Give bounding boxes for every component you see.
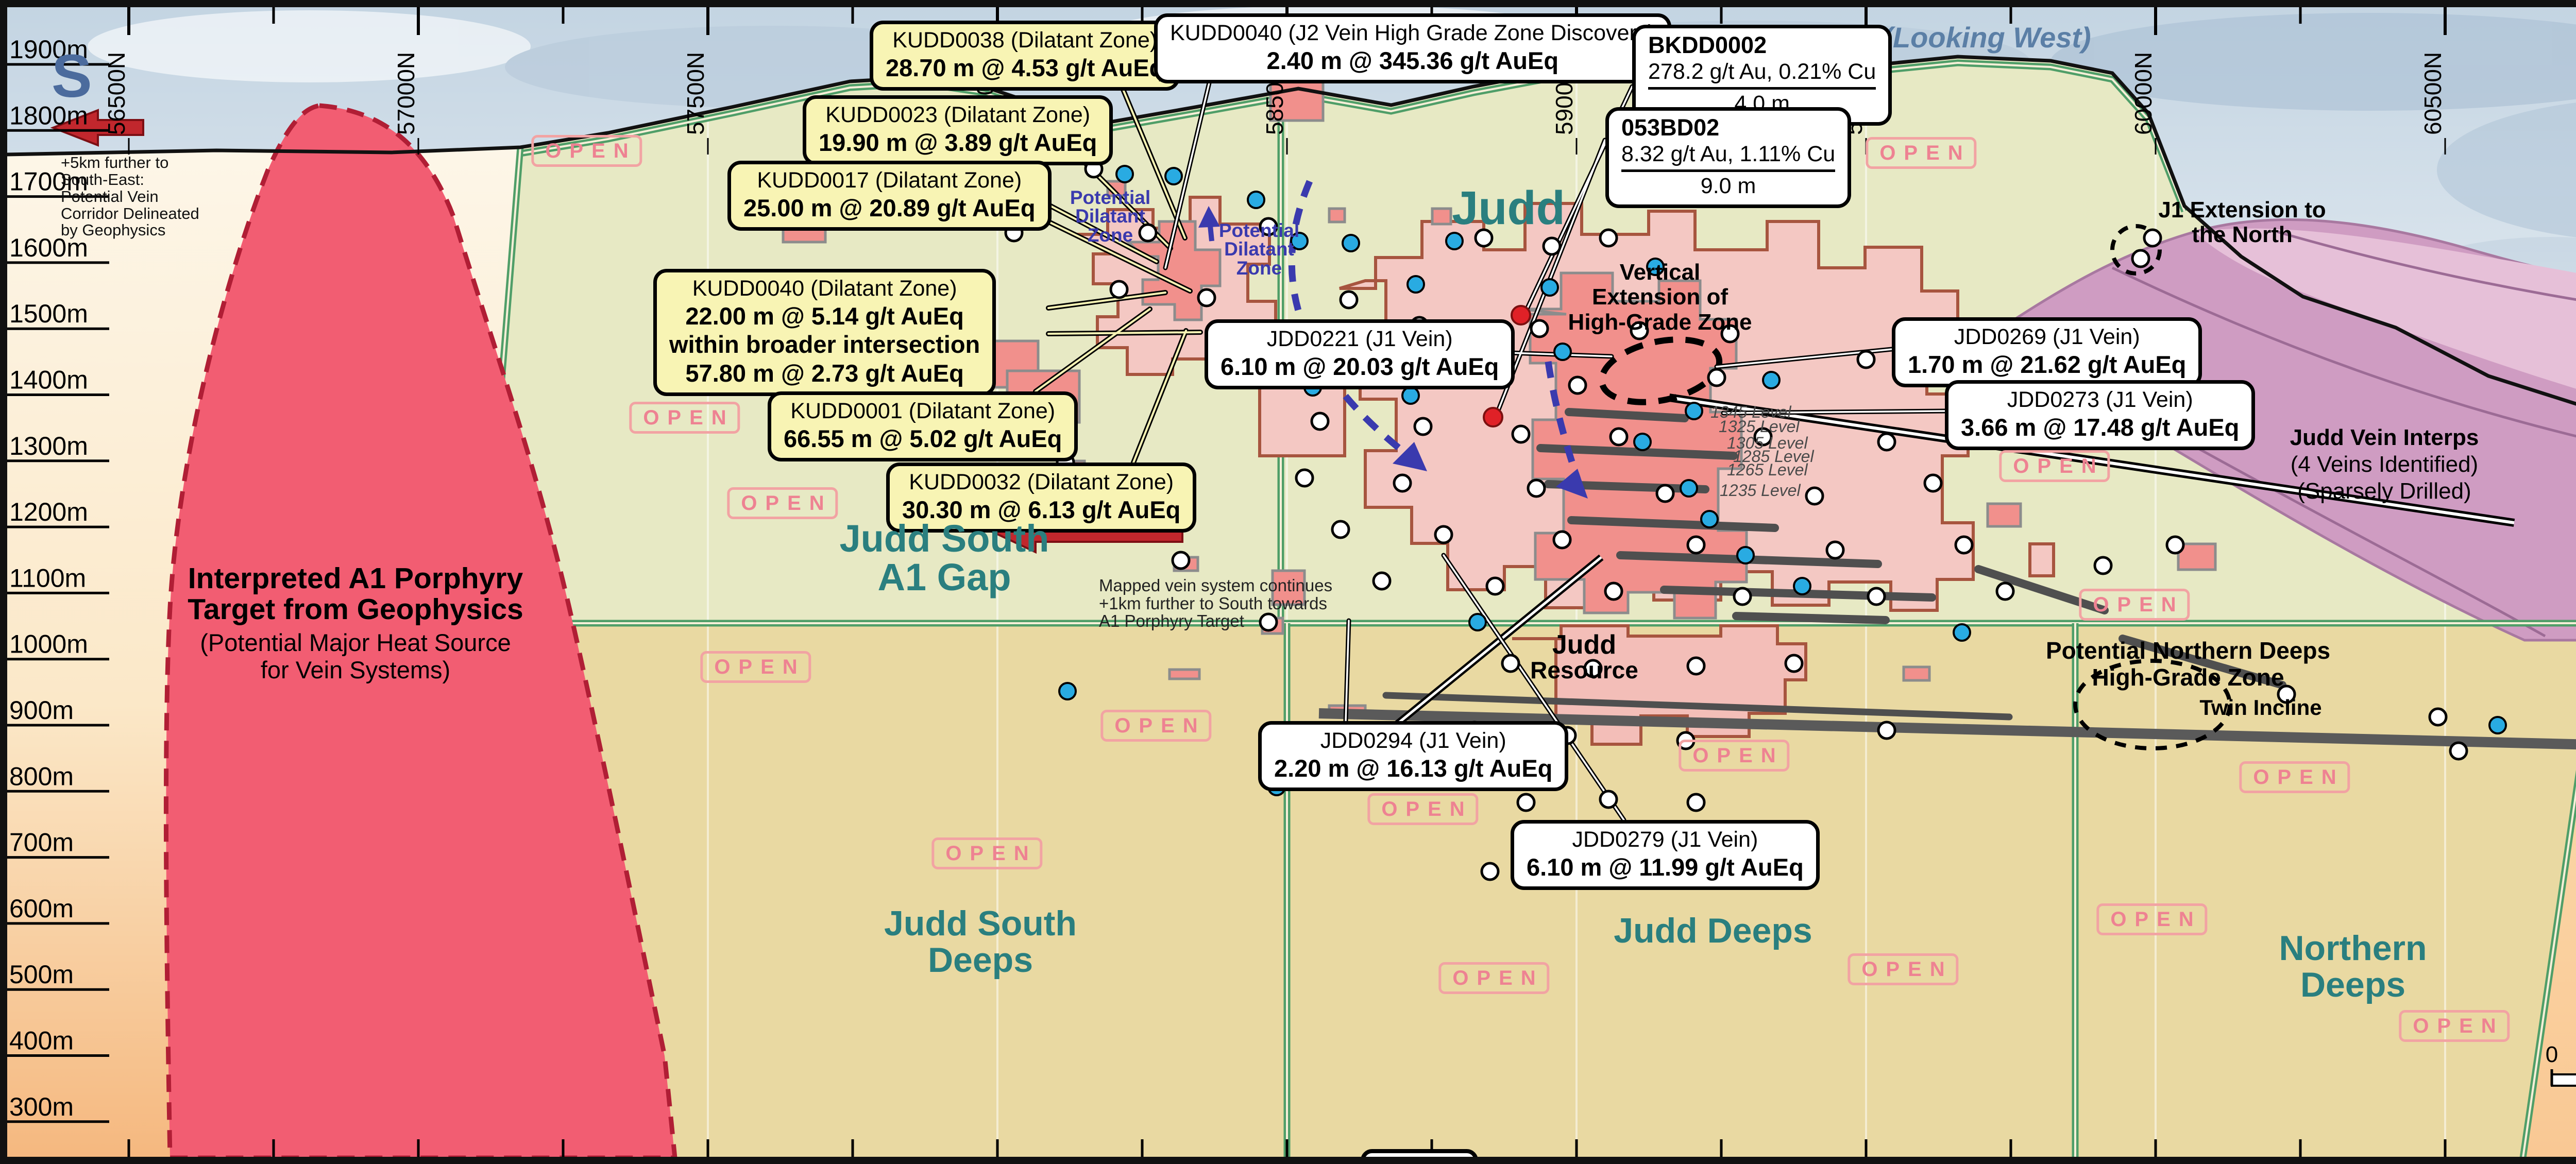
- callout-line: KUDD0038 (Dilatant Zone): [886, 27, 1164, 54]
- j1-pierce-point: [1312, 413, 1328, 430]
- elevation-label: 1400m: [9, 366, 88, 395]
- callout-line: 2.20 m @ 16.13 g/t AuEq: [1274, 754, 1552, 782]
- callout-line: KUDD0032 (Dilatant Zone): [902, 469, 1180, 495]
- open-label: OPEN: [531, 135, 642, 167]
- open-label: OPEN: [1100, 710, 1211, 742]
- j1-pierce-point: [2167, 537, 2183, 553]
- elevation-label: 1000m: [9, 630, 88, 659]
- label-twin-incline: Twin Incline: [2199, 695, 2321, 720]
- j1-pierce-point: [1435, 526, 1452, 543]
- j1-pierce-point: [1528, 480, 1545, 497]
- j2-pierce-point: [1763, 372, 1780, 388]
- open-label: OPEN: [1438, 962, 1549, 994]
- callout-line: KUDD0040 (Dilatant Zone): [669, 276, 980, 302]
- elevation-label: 700m: [9, 828, 74, 857]
- j2-pierce-point: [1408, 276, 1424, 293]
- open-label: OPEN: [2399, 1010, 2510, 1042]
- northing-label: 60000N: [2130, 52, 2157, 135]
- j1-pierce-point: [1415, 418, 1431, 435]
- callout-jdd0221: JDD0221 (J1 Vein)6.10 m @ 20.03 g/t AuEq: [1205, 319, 1515, 389]
- j1-pierce-point: [1827, 542, 1843, 558]
- elevation-label: 900m: [9, 696, 74, 725]
- j1-pierce-point: [1332, 521, 1349, 538]
- open-label: OPEN: [700, 651, 811, 683]
- j1-pierce-point: [1341, 292, 1357, 308]
- elevation-label: 400m: [9, 1026, 74, 1055]
- label-vertical-extension: VerticalExtension ofHigh-Grade Zone: [1568, 260, 1752, 335]
- elevation-label: 800m: [9, 762, 74, 791]
- j2-pierce-point: [1059, 683, 1076, 699]
- j2-pierce-point: [1634, 434, 1651, 450]
- j1-pierce-point: [2450, 743, 2467, 759]
- scale-zero: 0: [2546, 1042, 2558, 1067]
- elevation-label: 500m: [9, 960, 74, 989]
- label-potential-dilatant-zone-1: PotentialDilatantZone: [1070, 189, 1150, 245]
- j1-pierce-point: [1997, 583, 2013, 600]
- j1-pierce-point: [1111, 281, 1127, 298]
- elevation-label: 1200m: [9, 498, 88, 526]
- elevation-label: 300m: [9, 1092, 74, 1121]
- open-label: OPEN: [1999, 450, 2110, 482]
- callout-line: JDD0269 (J1 Vein): [1908, 324, 2186, 350]
- northing-label: 56500N: [103, 52, 130, 135]
- open-label: OPEN: [1367, 793, 1478, 825]
- open-label: OPEN: [629, 402, 740, 434]
- j1-pierce-point: [1374, 573, 1390, 589]
- label-plus-5km-note: +5km further toSouth-East:Potential Vein…: [61, 155, 199, 239]
- callout-line: 25.00 m @ 20.89 g/t AuEq: [743, 194, 1036, 222]
- j1-pierce-point: [1482, 863, 1498, 880]
- j1-pierce-point: [1878, 434, 1895, 450]
- j2-pierce-point: [1402, 387, 1419, 404]
- j1-pierce-point: [1544, 238, 1560, 254]
- label-judd: Judd: [1452, 181, 1565, 235]
- j1-pierce-point: [2430, 709, 2446, 725]
- j1-pierce-point: [1878, 722, 1895, 739]
- label-judd-vein-interps: Judd Vein Interps(4 Veins Identified)(Sp…: [2290, 424, 2479, 505]
- j1-pierce-point: [1688, 537, 1704, 553]
- callout-line: 22.00 m @ 5.14 g/t AuEq: [669, 302, 980, 330]
- callout-kudd0040-dilatant: KUDD0040 (Dilatant Zone)22.00 m @ 5.14 g…: [653, 269, 996, 396]
- label-mapped-vein-note: Mapped vein system continues+1km further…: [1099, 577, 1332, 630]
- elevation-label: 1300m: [9, 432, 88, 460]
- j1-pierce-point: [1657, 485, 1673, 502]
- open-label: OPEN: [1866, 137, 1976, 169]
- j1-pierce-point: [1531, 320, 1548, 337]
- open-label: OPEN: [1848, 953, 1958, 985]
- compass-south: S: [52, 41, 92, 111]
- label-judd-deeps: Judd Deeps: [1614, 911, 1812, 951]
- label-a1-porphyry-sub: (Potential Major Heat Sourcefor Vein Sys…: [200, 629, 511, 683]
- j2-pierce-point: [1248, 192, 1264, 208]
- callout-line: 278.2 g/t Au, 0.21% Cu: [1648, 59, 1876, 90]
- j2-pierce-point: [1954, 624, 1970, 641]
- callout-kudd0038: KUDD0038 (Dilatant Zone)28.70 m @ 4.53 g…: [870, 21, 1180, 91]
- elevation-label: 600m: [9, 894, 74, 923]
- callout-line: JDD0279 (J1 Vein): [1527, 827, 1804, 853]
- j1-pierce-point: [1925, 475, 1941, 491]
- northing-label: 60500N: [2419, 52, 2446, 135]
- j1-pierce-point: [1513, 426, 1529, 442]
- j1-pierce-point: [1600, 230, 1617, 246]
- j2-pierce-point: [1681, 480, 1697, 497]
- callout-line: KUDD0023 (Dilatant Zone): [819, 102, 1097, 128]
- j2-pierce-point: [1541, 279, 1558, 296]
- callout-line: 9.0 m: [1621, 172, 1835, 199]
- open-label: OPEN: [2079, 589, 2190, 621]
- j1-pierce-point: [1806, 488, 1823, 504]
- j2-pierce-point: [1794, 578, 1810, 594]
- callout-kudd0017: KUDD0017 (Dilatant Zone)25.00 m @ 20.89 …: [727, 161, 1052, 231]
- callout-line: KUDD0040 (J2 Vein High Grade Zone Discov…: [1170, 20, 1655, 46]
- callout-line: 57.80 m @ 2.73 g/t AuEq: [669, 359, 980, 387]
- level-label: 1235 Level: [1720, 481, 1801, 500]
- j2-pierce-point: [1701, 511, 1718, 527]
- j1-pierce-point: [1569, 377, 1586, 393]
- callout-jdd0294: JDD0294 (J1 Vein)2.20 m @ 16.13 g/t AuEq: [1258, 721, 1568, 791]
- open-label: OPEN: [2239, 761, 2350, 793]
- section-title: (Looking West): [1883, 21, 2091, 54]
- callout-kudd0040-j2: KUDD0040 (J2 Vein High Grade Zone Discov…: [1154, 13, 1671, 83]
- j1-pierce-point: [1600, 791, 1617, 808]
- j1-pierce-point: [1611, 429, 1627, 445]
- callout-line: 8.32 g/t Au, 1.11% Cu: [1621, 141, 1835, 172]
- label-judd-resource: JuddResource: [1530, 631, 1638, 682]
- j1-pierce-point: [2132, 250, 2149, 267]
- long-section-diagram: 1900m1800m1700m1600m1500m1400m1300m1200m…: [0, 0, 2576, 1164]
- j1-pierce-point: [1786, 655, 1802, 672]
- j2-pierce-point: [2489, 717, 2506, 733]
- highlight-ddh-point: [1484, 408, 1502, 426]
- callout-line: KUDD0017 (Dilatant Zone): [743, 167, 1036, 194]
- j1-pierce-point: [1688, 658, 1704, 674]
- label-potential-dilatant-zone-2: PotentialDilatantZone: [1219, 221, 1299, 278]
- j1-pierce-point: [1198, 289, 1215, 306]
- callout-kudd0001: KUDD0001 (Dilatant Zone)66.55 m @ 5.02 g…: [768, 391, 1078, 461]
- callout-line: KUDD0001 (Dilatant Zone): [784, 398, 1062, 424]
- j1-pierce-point: [1554, 532, 1570, 548]
- label-j1-extension: J1 Extension tothe North: [2158, 198, 2326, 247]
- j1-pierce-point: [1688, 794, 1704, 811]
- callout-line: 6.10 m @ 11.99 g/t AuEq: [1527, 853, 1804, 881]
- j1-pierce-point: [1518, 794, 1534, 811]
- j1-pierce-point: [1487, 578, 1503, 594]
- callout-line: 66.55 m @ 5.02 g/t AuEq: [784, 424, 1062, 453]
- callout-line: 053BD02: [1621, 114, 1835, 141]
- label-potential-northern-deeps: Potential Northern DeepsHigh-Grade Zone: [2046, 638, 2330, 691]
- open-label: OPEN: [2096, 903, 2207, 935]
- label-judd-south-a1-gap: Judd SouthA1 Gap: [840, 519, 1049, 597]
- callout-jdd0269: JDD0269 (J1 Vein)1.70 m @ 21.62 g/t AuEq: [1892, 317, 2202, 387]
- j1-pierce-point: [1734, 588, 1751, 605]
- label-northern-deeps: NorthernDeeps: [2279, 930, 2427, 1003]
- j1-pierce-point: [1956, 537, 1972, 553]
- j2-pierce-point: [1116, 166, 1133, 182]
- callout-line: 2.40 m @ 345.36 g/t AuEq: [1170, 46, 1655, 75]
- northing-label: 57000N: [393, 52, 419, 135]
- j1-pierce-point: [1296, 470, 1313, 486]
- j1-pierce-point: [1605, 583, 1622, 600]
- j1-pierce-point: [1868, 588, 1885, 605]
- j2-pierce-point: [1686, 403, 1702, 419]
- j1-pierce-point: [1858, 351, 1874, 368]
- level-label: 1265 Level: [1727, 460, 1808, 480]
- callout-line: JDD0221 (J1 Vein): [1221, 326, 1499, 352]
- callout-line: JDD0273 (J1 Vein): [1961, 387, 2239, 413]
- label-judd-south-deeps: Judd SouthDeeps: [884, 905, 1077, 978]
- j1-pierce-point: [1708, 369, 1725, 386]
- callout-kudd0023: KUDD0023 (Dilatant Zone)19.90 m @ 3.89 g…: [803, 95, 1113, 165]
- j2-pierce-point: [1554, 344, 1571, 360]
- label-a1-porphyry-title: Interpreted A1 PorphyryTarget from Geoph…: [188, 563, 523, 625]
- open-label: OPEN: [727, 487, 838, 519]
- elevation-label: 1100m: [9, 563, 86, 592]
- open-label: OPEN: [931, 837, 1042, 869]
- callout-jdd0273: JDD0273 (J1 Vein)3.66 m @ 17.48 g/t AuEq: [1945, 380, 2255, 450]
- callout-line: 19.90 m @ 3.89 g/t AuEq: [819, 128, 1097, 157]
- callout-line: within broader intersection: [669, 330, 980, 358]
- highlight-ddh-point: [1512, 306, 1530, 324]
- callout-line: 6.10 m @ 20.03 g/t AuEq: [1221, 352, 1499, 381]
- callout-jdd0279: JDD0279 (J1 Vein)6.10 m @ 11.99 g/t AuEq: [1511, 820, 1820, 890]
- callout-line: JDD0294 (J1 Vein): [1274, 728, 1552, 754]
- northing-label: 57500N: [682, 52, 709, 135]
- j1-pierce-point: [2095, 557, 2111, 574]
- open-label: OPEN: [1679, 740, 1789, 772]
- j2-pierce-point: [1737, 547, 1754, 563]
- j1-pierce-point: [1173, 552, 1189, 569]
- callout-line: 3.66 m @ 17.48 g/t AuEq: [1961, 413, 2239, 441]
- callout-053bd02: 053BD028.32 g/t Au, 1.11% Cu9.0 m: [1605, 107, 1851, 208]
- callout-line: BKDD0002: [1648, 31, 1876, 59]
- callout-line: 28.70 m @ 4.53 g/t AuEq: [886, 54, 1164, 82]
- elevation-label: 1500m: [9, 299, 88, 328]
- j1-pierce-point: [1502, 655, 1519, 672]
- j2-pierce-point: [1165, 168, 1182, 184]
- j1-pierce-point: [1394, 475, 1411, 491]
- j2-pierce-point: [1343, 235, 1359, 251]
- callout-line: 1.70 m @ 21.62 g/t AuEq: [1908, 350, 2186, 379]
- j2-pierce-point: [1469, 614, 1486, 630]
